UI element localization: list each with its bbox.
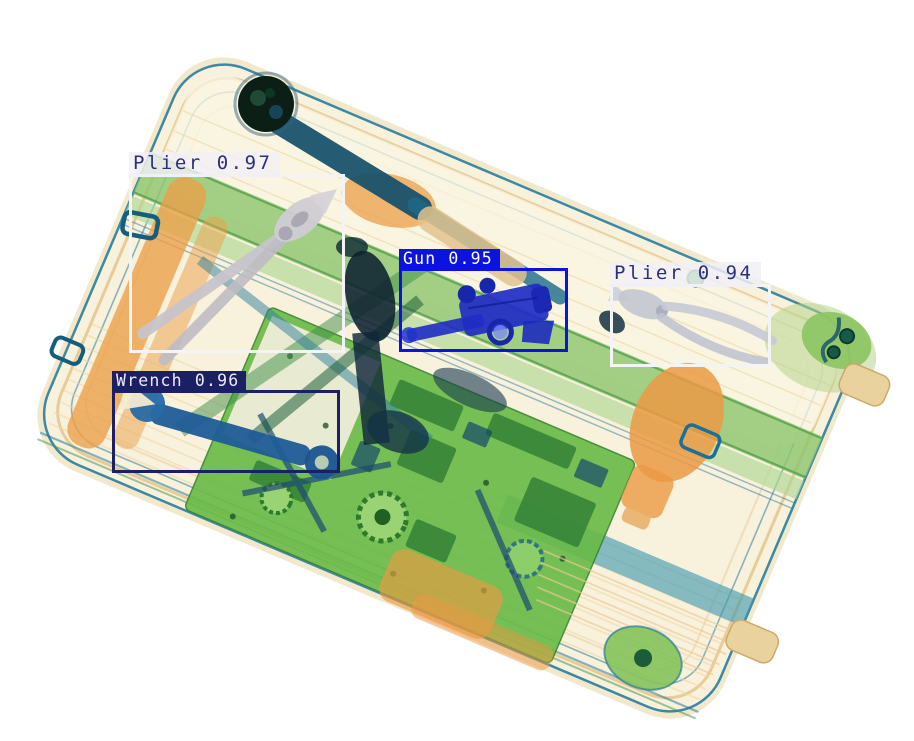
xray-scan-viewport: Plier0.97 Gun0.95 Plier0.94 Wrench0.96: [0, 0, 914, 741]
xray-scan-image: [0, 0, 914, 741]
